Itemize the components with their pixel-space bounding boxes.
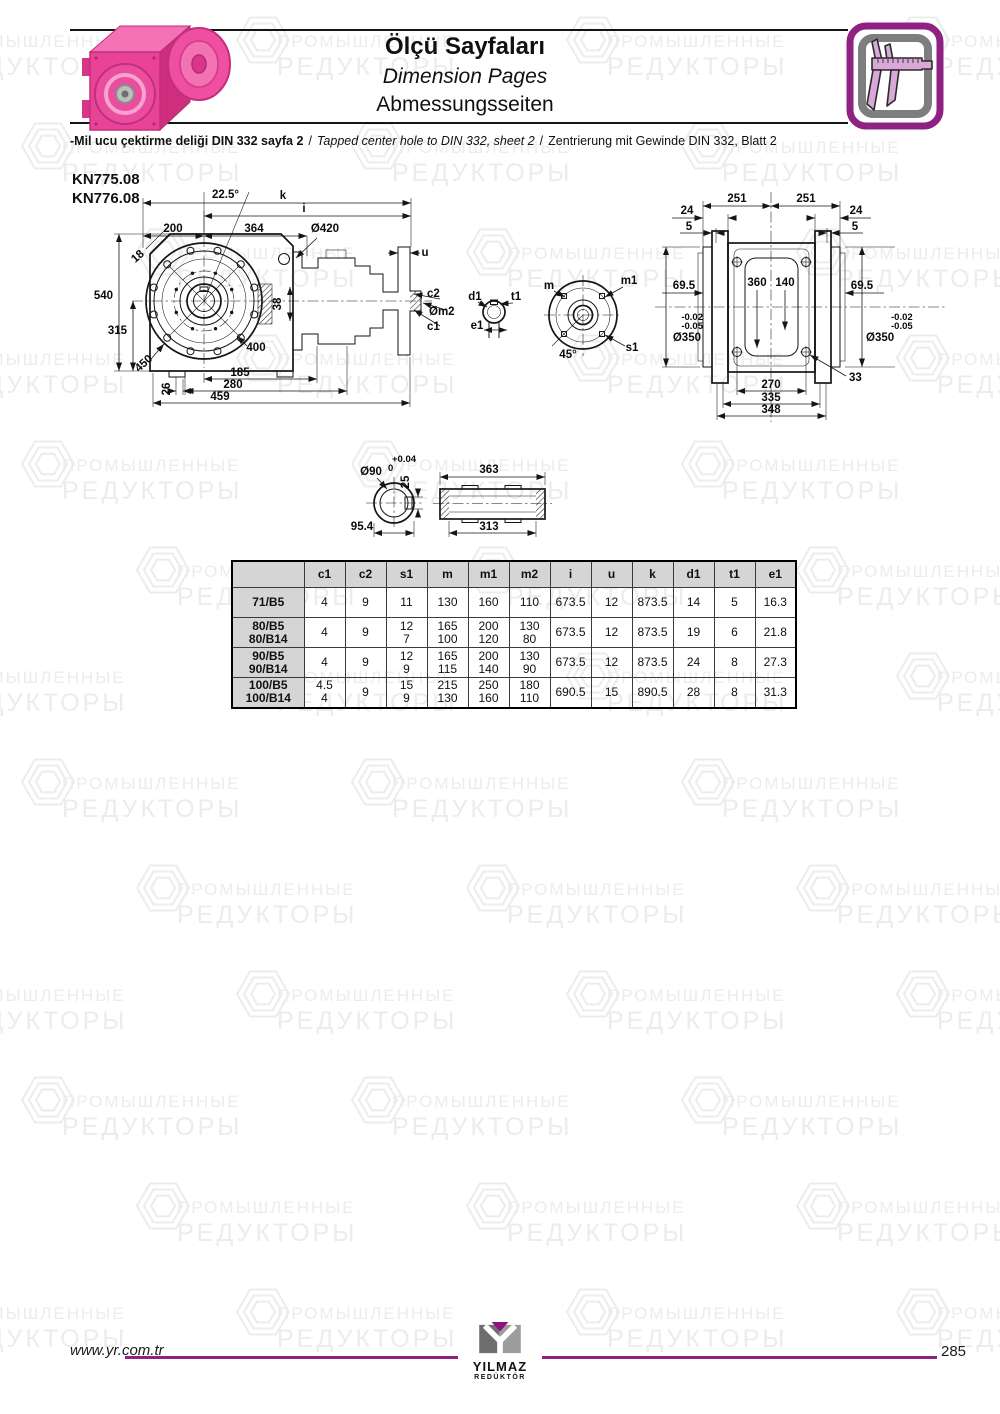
table-cell: 28 bbox=[673, 678, 714, 708]
dim-label: 185 bbox=[230, 367, 250, 379]
table-cell: 4 bbox=[304, 618, 345, 648]
watermark-line2: РЕДУКТОРЫ bbox=[937, 1007, 1000, 1036]
dim-label: 69.5 bbox=[673, 280, 696, 292]
watermark: ПРОМЫШЛЕННЫЕРЕДУКТОРЫ bbox=[565, 972, 787, 1036]
table-row: 71/B54911130160110673.512873.514516.3 bbox=[232, 588, 796, 618]
row-header: 71/B5 bbox=[232, 588, 304, 618]
watermark-line2: РЕДУКТОРЫ bbox=[837, 1219, 1000, 1248]
dim-label: 38 bbox=[272, 297, 284, 310]
dim-label: Ø90 bbox=[360, 466, 382, 478]
watermark-line1: ПРОМЫШЛЕННЫЕ bbox=[937, 32, 1000, 52]
logo-text-secondary: REDÜKTÖR bbox=[458, 1374, 542, 1381]
watermark-line1: ПРОМЫШЛЕННЫЕ bbox=[837, 562, 1000, 582]
watermark-line2: РЕДУКТОРЫ bbox=[177, 1219, 357, 1248]
column-header: e1 bbox=[755, 561, 796, 588]
watermark-line2: РЕДУКТОРЫ bbox=[62, 1113, 242, 1142]
table-header-row: c1c2s1mm1m2iukd1t1e1 bbox=[232, 561, 796, 588]
yilmaz-logo-icon bbox=[478, 1322, 522, 1356]
company-logo: YILMAZ REDÜKTÖR bbox=[458, 1320, 542, 1384]
watermark-line1: ПРОМЫШЛЕННЫЕ bbox=[937, 1304, 1000, 1324]
note-separator: / bbox=[535, 134, 548, 148]
dim-label: s1 bbox=[626, 342, 639, 354]
dim-label: d1 bbox=[468, 291, 482, 303]
watermark-line1: ПРОМЫШЛЕННЫЕ bbox=[837, 880, 1000, 900]
dim-label: Ø350 bbox=[673, 332, 701, 344]
table-cell: 5 bbox=[714, 588, 755, 618]
table-cell: 31.3 bbox=[755, 678, 796, 708]
table-cell: 673.5 bbox=[550, 618, 591, 648]
dim-label: 313 bbox=[479, 521, 498, 533]
watermark: ПРОМЫШЛЕННЫЕРЕДУКТОРЫ bbox=[795, 548, 1000, 612]
dim-label: u bbox=[421, 247, 428, 259]
watermark: ПРОМЫШЛЕННЫЕРЕДУКТОРЫ bbox=[350, 1078, 572, 1142]
watermark-line2: РЕДУКТОРЫ bbox=[62, 477, 242, 506]
dim-label: m bbox=[544, 280, 554, 292]
watermark-line2: РЕДУКТОРЫ bbox=[392, 1113, 572, 1142]
dim-label: 335 bbox=[761, 392, 781, 404]
dim-label: 24 bbox=[681, 205, 694, 217]
din-note-german: Zentrierung mit Gewinde DIN 332, Blatt 2 bbox=[548, 134, 777, 148]
table-cell: 11 bbox=[386, 588, 427, 618]
watermark: ПРОМЫШЛЕННЫЕРЕДУКТОРЫ bbox=[565, 1290, 787, 1354]
table-cell: 873.5 bbox=[632, 618, 673, 648]
table-cell: 4.5 4 bbox=[304, 678, 345, 708]
watermark-line2: РЕДУКТОРЫ bbox=[0, 689, 127, 718]
corner-cell bbox=[232, 561, 304, 588]
table-cell: 12 9 bbox=[386, 648, 427, 678]
table-cell: 15 9 bbox=[386, 678, 427, 708]
watermark-line2: РЕДУКТОРЫ bbox=[837, 901, 1000, 930]
watermark: ПРОМЫШЛЕННЫЕРЕДУКТОРЫ bbox=[135, 866, 357, 930]
table-cell: 4 bbox=[304, 648, 345, 678]
watermark-line2: РЕДУКТОРЫ bbox=[837, 583, 1000, 612]
watermark-line2: РЕДУКТОРЫ bbox=[277, 1007, 457, 1036]
table-cell: 690.5 bbox=[550, 678, 591, 708]
dim-label: 270 bbox=[761, 379, 780, 391]
watermark-line1: ПРОМЫШЛЕННЫЕ bbox=[277, 986, 457, 1006]
watermark-line1: ПРОМЫШЛЕННЫЕ bbox=[277, 1304, 457, 1324]
column-header: m2 bbox=[509, 561, 550, 588]
watermark-line1: ПРОМЫШЛЕННЫЕ bbox=[62, 456, 242, 476]
watermark: ПРОМЫШЛЕННЫЕРЕДУКТОРЫ bbox=[465, 1184, 687, 1248]
table-row: 100/B5 100/B144.5 4915 9215 130250 16018… bbox=[232, 678, 796, 708]
table-cell: 165 100 bbox=[427, 618, 468, 648]
dim-label: k bbox=[280, 190, 287, 202]
watermark: ПРОМЫШЛЕННЫЕРЕДУКТОРЫ bbox=[680, 760, 902, 824]
watermark: ПРОМЫШЛЕННЫЕРЕДУКТОРЫ bbox=[795, 1184, 1000, 1248]
dim-label: 5 bbox=[852, 221, 859, 233]
page-number: 285 bbox=[941, 1343, 966, 1360]
dim-label: 26 bbox=[161, 383, 173, 396]
dim-label: 24 bbox=[850, 205, 863, 217]
watermark-line2: РЕДУКТОРЫ bbox=[507, 901, 687, 930]
watermark-line1: ПРОМЫШЛЕННЫЕ bbox=[937, 668, 1000, 688]
watermark-line2: РЕДУКТОРЫ bbox=[0, 1007, 127, 1036]
table-cell: 130 90 bbox=[509, 648, 550, 678]
table-cell: 890.5 bbox=[632, 678, 673, 708]
table-cell: 27.3 bbox=[755, 648, 796, 678]
table-cell: 21.8 bbox=[755, 618, 796, 648]
table-cell: 673.5 bbox=[550, 648, 591, 678]
dim-label: 459 bbox=[210, 391, 229, 403]
row-header: 90/B5 90/B14 bbox=[232, 648, 304, 678]
table-cell: 165 115 bbox=[427, 648, 468, 678]
page-title-block: Ölçü Sayfaları Dimension Pages Abmessung… bbox=[265, 33, 665, 117]
side-view-drawing: 251 251 24 5 24 5 69.5 69.5 360 140 -0.0 bbox=[650, 185, 950, 430]
dim-label: 33 bbox=[849, 372, 862, 384]
watermark: ПРОМЫШЛЕННЫЕРЕДУКТОРЫ bbox=[350, 760, 572, 824]
watermark-line2: РЕДУКТОРЫ bbox=[937, 53, 1000, 82]
dim-label: -0.05 bbox=[681, 321, 703, 332]
column-header: c2 bbox=[345, 561, 386, 588]
dim-label: m1 bbox=[621, 275, 638, 287]
table-cell: 9 bbox=[345, 648, 386, 678]
dim-label: 360 bbox=[747, 277, 766, 289]
watermark-line1: ПРОМЫШЛЕННЫЕ bbox=[62, 1092, 242, 1112]
table-cell: 130 bbox=[427, 588, 468, 618]
column-header: m1 bbox=[468, 561, 509, 588]
watermark: ПРОМЫШЛЕННЫЕРЕДУКТОРЫ bbox=[795, 866, 1000, 930]
table-cell: 8 bbox=[714, 678, 755, 708]
dim-label: 0 bbox=[388, 463, 393, 474]
watermark-line2: РЕДУКТОРЫ bbox=[607, 1325, 787, 1354]
catalog-page: ПРОМЫШЛЕННЫЕРЕДУКТОРЫПРОМЫШЛЕННЫЕРЕДУКТО… bbox=[0, 0, 1000, 1414]
watermark-line1: ПРОМЫШЛЕННЫЕ bbox=[177, 880, 357, 900]
flange-circle-view: m m1 s1 45° bbox=[544, 275, 639, 361]
note-separator: / bbox=[303, 134, 316, 148]
dim-label: 540 bbox=[94, 290, 113, 302]
watermark: ПРОМЫШЛЕННЫЕРЕДУКТОРЫ bbox=[895, 654, 1000, 718]
table-cell: 24 bbox=[673, 648, 714, 678]
table-cell: 12 bbox=[591, 618, 632, 648]
column-header: k bbox=[632, 561, 673, 588]
watermark-line1: ПРОМЫШЛЕННЫЕ bbox=[0, 668, 127, 688]
dim-label: 280 bbox=[223, 379, 242, 391]
table-cell: 12 bbox=[591, 648, 632, 678]
watermark-line1: ПРОМЫШЛЕННЫЕ bbox=[392, 774, 572, 794]
dim-label: t1 bbox=[511, 291, 522, 303]
dim-label: e1 bbox=[471, 320, 484, 332]
column-header: s1 bbox=[386, 561, 427, 588]
dimension-table: c1c2s1mm1m2iukd1t1e1 71/B549111301601106… bbox=[231, 560, 797, 709]
table-row: 90/B5 90/B144912 9165 115200 140130 9067… bbox=[232, 648, 796, 678]
dim-label: 22.5° bbox=[212, 189, 239, 201]
watermark-line2: РЕДУКТОРЫ bbox=[722, 1113, 902, 1142]
watermark-line1: ПРОМЫШЛЕННЫЕ bbox=[937, 986, 1000, 1006]
table-cell: 19 bbox=[673, 618, 714, 648]
table-cell: 4 bbox=[304, 588, 345, 618]
front-view-drawing: k i 22.5° 200 364 Ø420 18 540 315 450 40… bbox=[60, 175, 650, 450]
dim-label: c1 bbox=[427, 321, 440, 333]
watermark: ПРОМЫШЛЕННЫЕРЕДУКТОРЫ bbox=[895, 972, 1000, 1036]
column-header: i bbox=[550, 561, 591, 588]
table-cell: 200 140 bbox=[468, 648, 509, 678]
table-cell: 12 7 bbox=[386, 618, 427, 648]
table-cell: 200 120 bbox=[468, 618, 509, 648]
watermark-line1: ПРОМЫШЛЕННЫЕ bbox=[0, 986, 127, 1006]
column-header: m bbox=[427, 561, 468, 588]
dim-label: 18 bbox=[129, 248, 147, 266]
dim-label: 200 bbox=[163, 223, 182, 235]
table-cell: 15 bbox=[591, 678, 632, 708]
watermark: ПРОМЫШЛЕННЫЕРЕДУКТОРЫ bbox=[20, 442, 242, 506]
watermark-line2: РЕДУКТОРЫ bbox=[177, 901, 357, 930]
dim-label: Øm2 bbox=[429, 306, 455, 318]
hollow-shaft-drawing: Ø90 +0.04 0 25 95.4 363 313 bbox=[330, 440, 560, 550]
watermark-line1: ПРОМЫШЛЕННЫЕ bbox=[62, 774, 242, 794]
watermark: ПРОМЫШЛЕННЫЕРЕДУКТОРЫ bbox=[680, 1078, 902, 1142]
logo-text-primary: YILMAZ bbox=[458, 1359, 542, 1374]
din-note-english: Tapped center hole to DIN 332, sheet 2 bbox=[317, 134, 535, 148]
watermark-line1: ПРОМЫШЛЕННЫЕ bbox=[507, 1198, 687, 1218]
din-note: -Mil ucu çektirme deliği DIN 332 sayfa 2… bbox=[70, 134, 777, 148]
column-header: u bbox=[591, 561, 632, 588]
website-link[interactable]: www.yr.com.tr bbox=[70, 1342, 164, 1359]
dim-label: +0.04 bbox=[392, 454, 417, 465]
table-cell: 160 bbox=[468, 588, 509, 618]
watermark: ПРОМЫШЛЕННЫЕРЕДУКТОРЫ bbox=[235, 972, 457, 1036]
dim-label: 400 bbox=[246, 342, 265, 354]
table-cell: 14 bbox=[673, 588, 714, 618]
table-cell: 873.5 bbox=[632, 648, 673, 678]
watermark: ПРОМЫШЛЕННЫЕРЕДУКТОРЫ bbox=[0, 972, 127, 1036]
column-header: t1 bbox=[714, 561, 755, 588]
dim-label: 315 bbox=[108, 325, 128, 337]
watermark-line1: ПРОМЫШЛЕННЫЕ bbox=[177, 1198, 357, 1218]
dim-label: 251 bbox=[727, 193, 747, 205]
watermark-line2: РЕДУКТОРЫ bbox=[507, 1219, 687, 1248]
dim-label: 25 bbox=[400, 475, 412, 488]
watermark: ПРОМЫШЛЕННЫЕРЕДУКТОРЫ bbox=[235, 1290, 457, 1354]
dim-label: i bbox=[302, 203, 305, 215]
watermark-line2: РЕДУКТОРЫ bbox=[62, 795, 242, 824]
watermark-line2: РЕДУКТОРЫ bbox=[722, 477, 902, 506]
dim-label: 5 bbox=[686, 221, 693, 233]
table-cell: 215 130 bbox=[427, 678, 468, 708]
row-header: 80/B5 80/B14 bbox=[232, 618, 304, 648]
watermark-line1: ПРОМЫШЛЕННЫЕ bbox=[392, 1092, 572, 1112]
dim-label: 251 bbox=[796, 193, 816, 205]
watermark-line1: ПРОМЫШЛЕННЫЕ bbox=[722, 456, 902, 476]
page-title-german: Abmessungsseiten bbox=[265, 93, 665, 117]
table-cell: 250 160 bbox=[468, 678, 509, 708]
watermark-line1: ПРОМЫШЛЕННЫЕ bbox=[507, 880, 687, 900]
watermark-line2: РЕДУКТОРЫ bbox=[607, 1007, 787, 1036]
table-cell: 12 bbox=[591, 588, 632, 618]
watermark-line1: ПРОМЫШЛЕННЫЕ bbox=[837, 1198, 1000, 1218]
dim-label: 140 bbox=[775, 277, 794, 289]
table-row: 80/B5 80/B144912 7165 100200 120130 8067… bbox=[232, 618, 796, 648]
watermark-line1: ПРОМЫШЛЕННЫЕ bbox=[722, 774, 902, 794]
dim-label: 95.4 bbox=[351, 521, 374, 533]
row-header: 100/B5 100/B14 bbox=[232, 678, 304, 708]
watermark: ПРОМЫШЛЕННЫЕРЕДУКТОРЫ bbox=[20, 760, 242, 824]
shaft-end-detail: d1 t1 e1 bbox=[468, 291, 521, 338]
table-cell: 9 bbox=[345, 618, 386, 648]
table-cell: 110 bbox=[509, 588, 550, 618]
table-cell: 6 bbox=[714, 618, 755, 648]
page-title-turkish: Ölçü Sayfaları bbox=[265, 33, 665, 61]
watermark-line2: РЕДУКТОРЫ bbox=[722, 159, 902, 188]
column-header: c1 bbox=[304, 561, 345, 588]
dim-label: Ø420 bbox=[311, 223, 339, 235]
din-note-turkish: -Mil ucu çektirme deliği DIN 332 sayfa 2 bbox=[70, 134, 303, 148]
watermark-line1: ПРОМЫШЛЕННЫЕ bbox=[607, 986, 787, 1006]
gearbox-product-image bbox=[62, 14, 240, 138]
dim-label: 364 bbox=[244, 223, 264, 235]
table-cell: 16.3 bbox=[755, 588, 796, 618]
watermark-line1: ПРОМЫШЛЕННЫЕ bbox=[0, 1304, 127, 1324]
watermark-line2: РЕДУКТОРЫ bbox=[722, 795, 902, 824]
watermark: ПРОМЫШЛЕННЫЕРЕДУКТОРЫ bbox=[20, 1078, 242, 1142]
watermark-line1: ПРОМЫШЛЕННЫЕ bbox=[607, 1304, 787, 1324]
watermark-line2: РЕДУКТОРЫ bbox=[937, 689, 1000, 718]
watermark-line2: РЕДУКТОРЫ bbox=[392, 795, 572, 824]
dim-label: 45° bbox=[559, 349, 577, 361]
table-cell: 9 bbox=[345, 588, 386, 618]
caliper-icon bbox=[846, 22, 944, 130]
dim-label: 363 bbox=[479, 464, 498, 476]
dim-label: 348 bbox=[761, 404, 781, 416]
column-header: d1 bbox=[673, 561, 714, 588]
page-title-english: Dimension Pages bbox=[265, 65, 665, 89]
watermark: ПРОМЫШЛЕННЫЕРЕДУКТОРЫ bbox=[465, 866, 687, 930]
table-cell: 9 bbox=[345, 678, 386, 708]
table-cell: 130 80 bbox=[509, 618, 550, 648]
watermark: ПРОМЫШЛЕННЫЕРЕДУКТОРЫ bbox=[680, 442, 902, 506]
watermark: ПРОМЫШЛЕННЫЕРЕДУКТОРЫ bbox=[135, 1184, 357, 1248]
watermark-line2: РЕДУКТОРЫ bbox=[277, 1325, 457, 1354]
dim-label: -0.05 bbox=[891, 321, 913, 332]
dim-label: Ø350 bbox=[866, 332, 894, 344]
table-cell: 8 bbox=[714, 648, 755, 678]
watermark: ПРОМЫШЛЕННЫЕРЕДУКТОРЫ bbox=[0, 654, 127, 718]
table-cell: 180 110 bbox=[509, 678, 550, 708]
table-cell: 673.5 bbox=[550, 588, 591, 618]
watermark-line1: ПРОМЫШЛЕННЫЕ bbox=[722, 1092, 902, 1112]
table-cell: 873.5 bbox=[632, 588, 673, 618]
